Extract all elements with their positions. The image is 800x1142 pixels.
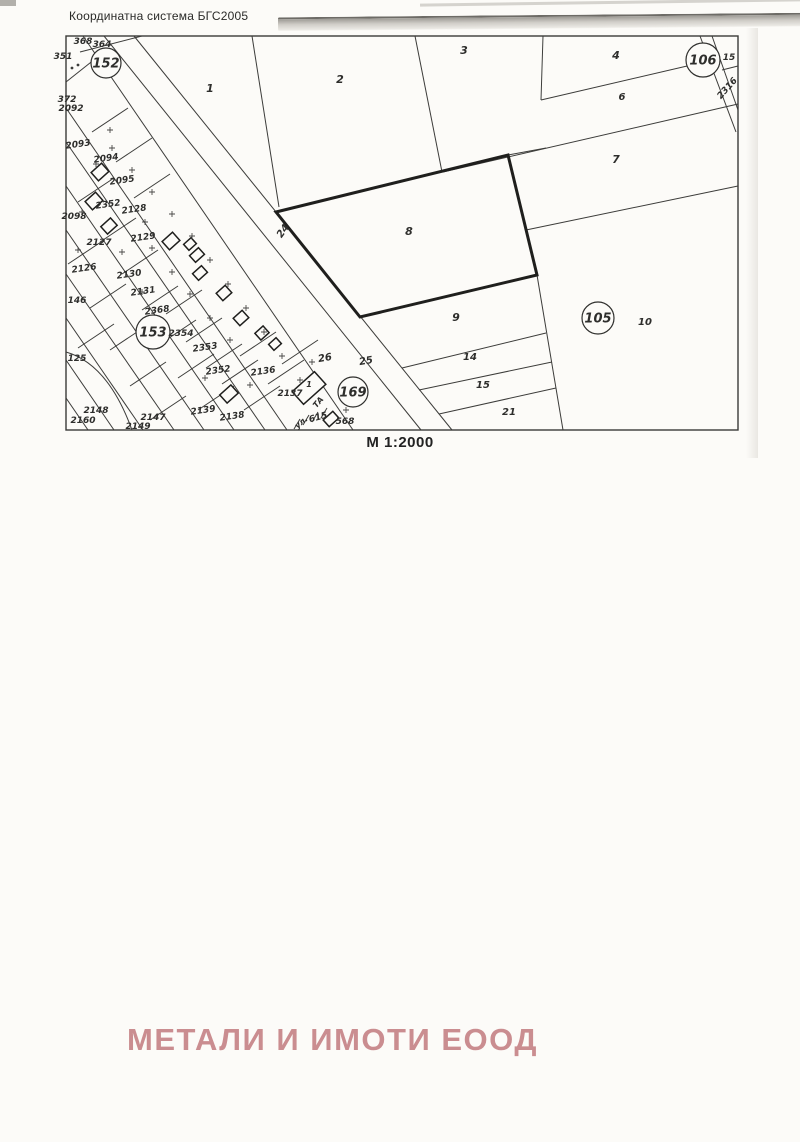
survey-cross-mark — [309, 359, 315, 365]
survey-cross-mark — [247, 382, 253, 388]
parcel-label: 2160 — [70, 416, 95, 426]
parcel-label: 2130 — [116, 268, 142, 281]
parcel-label: 15 — [723, 53, 736, 63]
parcel-label: 1 — [306, 380, 312, 389]
parcel-label: 9 — [452, 311, 460, 324]
cadastral-map: 1521061051531691234678910141521242526152… — [0, 0, 800, 470]
building-footprint — [184, 238, 197, 251]
parcel-label: 14 — [463, 352, 477, 363]
parcel-boundary-line — [415, 36, 442, 172]
parcel-label: 2127 — [86, 238, 112, 248]
parcel-label: 2095 — [109, 174, 135, 187]
parcel-label: 21 — [502, 407, 516, 418]
parcel-boundary-line — [244, 386, 280, 410]
parcel-label: 8 — [405, 225, 413, 238]
parcel-label: 26 — [317, 352, 333, 365]
parcel-label: 146 — [68, 296, 87, 306]
survey-cross-mark — [243, 305, 249, 311]
parcel-boundary-line — [443, 104, 738, 172]
survey-cross-mark — [169, 211, 175, 217]
parcel-boundary-line — [541, 36, 543, 100]
survey-cross-mark — [149, 245, 155, 251]
parcel-group-number: 153 — [139, 326, 166, 341]
parcel-label: 7 — [612, 153, 620, 166]
parcel-label: 351 — [54, 52, 73, 62]
parcel-label: 4 — [611, 49, 620, 62]
survey-dot — [71, 67, 74, 70]
parcel-boundary-line — [722, 66, 738, 70]
parcel-label: 2 — [336, 73, 344, 86]
company-watermark: МЕТАЛИ И ИМОТИ ЕООД — [127, 1022, 538, 1058]
parcel-label: 2136 — [250, 365, 276, 378]
parcel-boundary-line — [252, 36, 279, 207]
building-footprint — [193, 266, 208, 281]
survey-dot — [77, 64, 80, 67]
parcel-boundary-line — [282, 340, 318, 364]
parcel-label: 364 — [93, 40, 112, 50]
survey-cross-mark — [149, 189, 155, 195]
parcel-label: 25 — [358, 355, 374, 368]
parcel-boundary-line — [116, 138, 152, 162]
survey-cross-mark — [279, 353, 285, 359]
scanned-page: { "header": { "title": "Координатна сист… — [0, 0, 800, 1142]
survey-cross-mark — [107, 127, 113, 133]
parcel-label: 2129 — [130, 231, 156, 244]
parcel-label: 2352 — [95, 198, 121, 211]
parcel-label: 125 — [68, 354, 87, 364]
parcel-label: 2139 — [190, 404, 216, 417]
parcel-label: 2148 — [83, 406, 108, 416]
parcel-label: 15 — [476, 380, 490, 391]
survey-cross-mark — [129, 167, 135, 173]
survey-cross-mark — [119, 249, 125, 255]
map-frame — [66, 36, 738, 430]
building-footprint — [162, 232, 180, 250]
parcel-boundary-line — [537, 275, 563, 430]
parcel-boundary-line — [90, 284, 126, 308]
parcel-group-number: 169 — [339, 386, 366, 401]
parcel-label: 10 — [638, 317, 652, 328]
survey-cross-mark — [75, 247, 81, 253]
parcel-label: 568 — [336, 417, 355, 427]
survey-cross-mark — [169, 269, 175, 275]
page-background: Координатна система БГС2005 152106105153… — [0, 0, 800, 1142]
parcel-boundary-line — [166, 290, 202, 314]
survey-cross-mark — [343, 407, 349, 413]
parcel-label: 2137 — [277, 389, 303, 399]
parcel-boundary-line — [508, 148, 546, 155]
building-footprint — [216, 285, 232, 300]
map-scale-label: М 1:2000 — [0, 434, 800, 451]
parcel-label: 24 — [275, 222, 292, 240]
parcel-label: 3 — [460, 44, 468, 57]
parcel-label: 2368 — [144, 304, 170, 317]
parcel-label: 2126 — [71, 262, 97, 275]
building-footprint — [233, 310, 249, 325]
parcel-boundary-line — [439, 388, 556, 414]
parcel-group-number: 106 — [689, 54, 716, 69]
parcel-label: 368 — [74, 37, 93, 47]
parcel-label: 2131 — [130, 285, 156, 298]
parcel-label: 2138 — [219, 410, 245, 423]
parcel-label: ТА — [311, 395, 325, 410]
parcel-label: ул. — [293, 414, 310, 430]
parcel-label: 2094 — [93, 152, 119, 165]
parcel-boundary-line — [526, 186, 738, 230]
parcel-label: 1 — [206, 82, 214, 95]
building-footprint — [190, 248, 205, 263]
parcel-group-number: 152 — [92, 57, 119, 72]
parcel-label: 6 — [619, 92, 626, 103]
parcel-label: 2098 — [61, 212, 86, 222]
parcel-label: 2093 — [65, 138, 91, 151]
parcel-label: 2092 — [58, 104, 83, 114]
survey-cross-mark — [207, 257, 213, 263]
parcel-group-number: 105 — [584, 312, 611, 327]
survey-cross-mark — [227, 337, 233, 343]
parcel-label: 2353 — [192, 341, 218, 354]
parcel-label: 2149 — [125, 422, 150, 432]
parcel-label: 2354 — [168, 329, 193, 339]
building-footprint — [269, 338, 282, 351]
survey-cross-mark — [109, 145, 115, 151]
parcel-boundary-line — [66, 142, 265, 430]
parcel-label: 2128 — [121, 203, 147, 216]
